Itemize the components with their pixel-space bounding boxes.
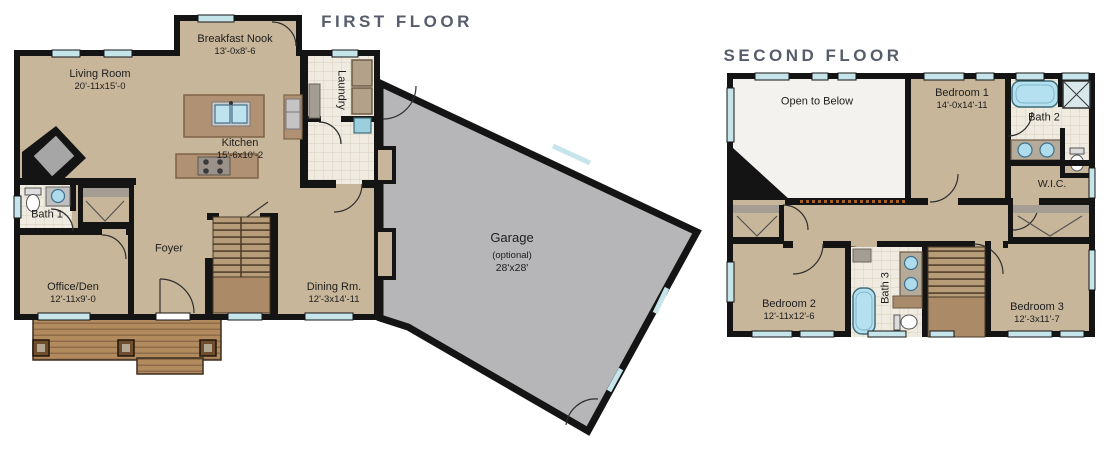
front-porch	[33, 318, 221, 374]
laundry-shelf	[309, 84, 320, 118]
bath3-shelf	[893, 296, 922, 308]
double-vanity	[1011, 140, 1063, 160]
garage-walls	[380, 83, 697, 431]
second-floor-stairs	[928, 241, 991, 337]
porch-steps	[137, 358, 203, 374]
kitchen-counter	[176, 154, 258, 178]
bath3-tub	[853, 288, 875, 334]
island-sink	[215, 105, 230, 123]
shower	[1063, 81, 1090, 108]
bath-3-area	[845, 241, 928, 337]
garage-structure	[380, 83, 697, 431]
first-floor-stairs	[205, 202, 278, 320]
bath3-toilet	[894, 315, 917, 330]
laundry-sink	[354, 118, 371, 133]
second-floor-plan	[727, 73, 1095, 337]
refrigerator	[284, 95, 302, 139]
open-to-below-area	[733, 79, 911, 205]
bathtub	[1012, 81, 1058, 107]
bath3-vanity	[900, 252, 922, 296]
foyer-closet	[78, 183, 134, 229]
toilet	[25, 188, 41, 212]
stove	[198, 157, 230, 175]
faucet	[229, 101, 233, 105]
bath3-cabinet	[853, 249, 871, 262]
floor-plan-canvas: FIRST FLOOR SECOND FLOOR Breakfast Nook …	[0, 0, 1116, 463]
garage-window	[553, 146, 590, 163]
bathroom-sink	[46, 187, 70, 206]
island-sink	[232, 105, 247, 123]
first-floor-plan	[14, 15, 697, 431]
floor-plan-drawing	[0, 0, 1116, 463]
kitchen-island	[184, 95, 264, 137]
